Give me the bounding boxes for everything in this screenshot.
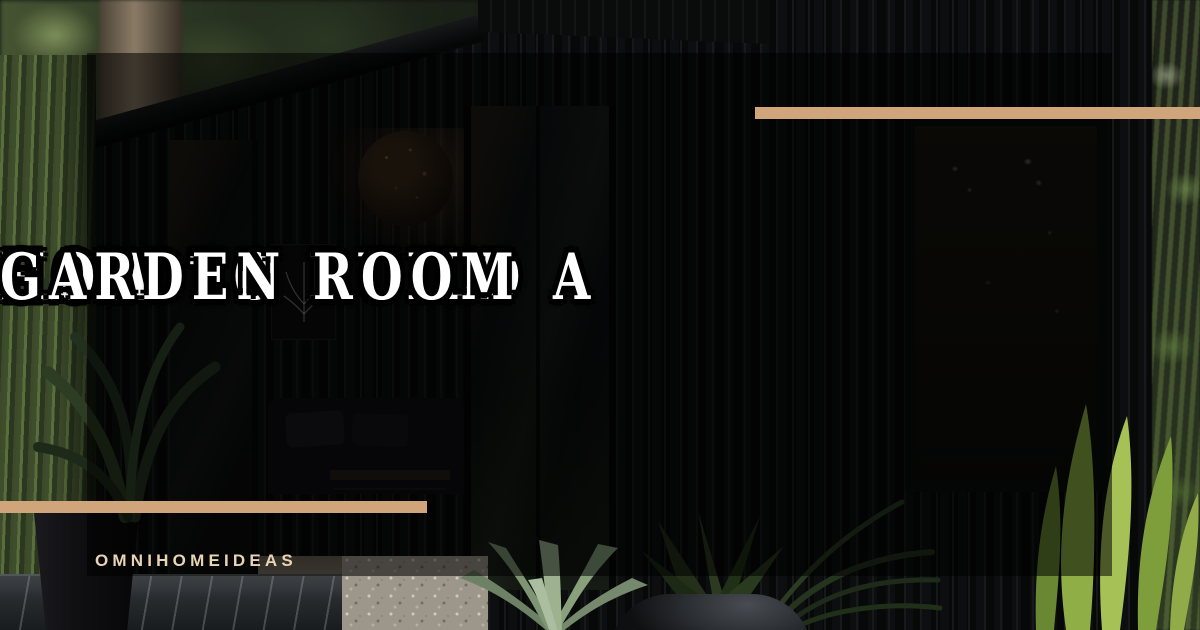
title-line-2: GARDEN ROOM [0, 239, 522, 316]
tree-trunk-right [1158, 0, 1190, 255]
brand-watermark: OMNIHOMEIDEAS [95, 551, 297, 571]
accent-bar-left [0, 501, 427, 513]
accent-bar-top-right [755, 107, 1200, 119]
featured-image-card: HOW TO BUILD A GARDEN ROOM OMNIHOMEIDEAS [0, 0, 1200, 630]
